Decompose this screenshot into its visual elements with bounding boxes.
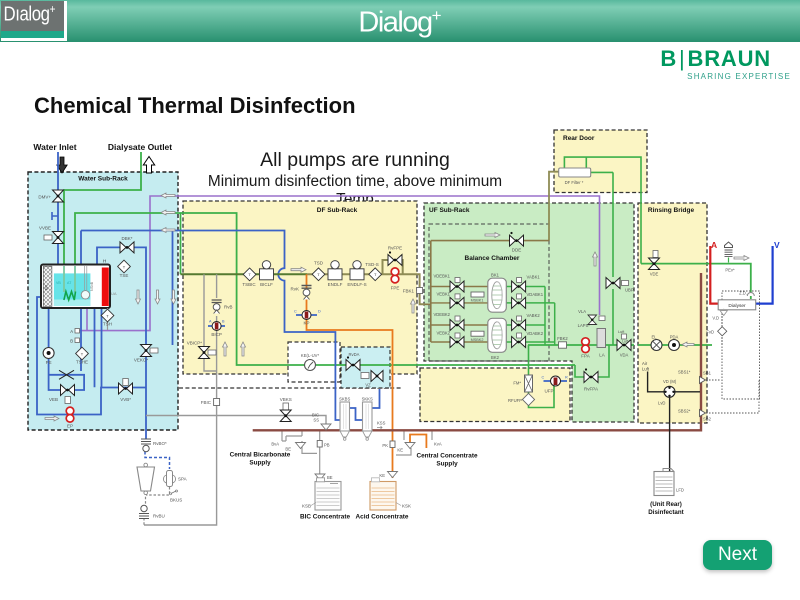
svg-text:RvBO*: RvBO* <box>153 441 167 446</box>
svg-text:UFP: UFP <box>545 389 554 394</box>
svg-text:BKUS: BKUS <box>170 498 182 503</box>
svg-text:TSHE: TSHE <box>76 360 88 365</box>
svg-text:DF Sub-Rack: DF Sub-Rack <box>317 207 358 214</box>
svg-text:Water Sub-Rack: Water Sub-Rack <box>78 176 128 183</box>
svg-text:VABK2: VABK2 <box>527 313 541 318</box>
svg-text:TSD-S: TSD-S <box>365 262 379 267</box>
svg-text:Water Inlet: Water Inlet <box>33 142 76 152</box>
svg-text:V: V <box>774 240 780 250</box>
svg-text:KE: KE <box>397 448 403 453</box>
svg-text:DMV+: DMV+ <box>38 195 51 200</box>
svg-text:Luft: Luft <box>642 367 650 372</box>
svg-text:DDE: DDE <box>512 248 522 253</box>
svg-text:SPA: SPA <box>178 477 187 482</box>
svg-text:PEv*: PEv* <box>725 268 735 273</box>
svg-text:VLA: VLA <box>578 309 586 314</box>
svg-text:KP: KP <box>303 321 309 326</box>
svg-text:Rear Door: Rear Door <box>563 135 595 142</box>
svg-text:RFUFP: RFUFP <box>508 398 522 403</box>
svg-text:Acid Concentrate: Acid Concentrate <box>356 514 409 521</box>
svg-text:BvA: BvA <box>271 442 279 447</box>
svg-text:FPE: FPE <box>391 286 400 291</box>
svg-text:LvD: LvD <box>658 401 665 406</box>
svg-text:VB: VB <box>56 281 61 285</box>
svg-text:Central Bicarbonate: Central Bicarbonate <box>230 452 291 459</box>
svg-text:FBIC: FBIC <box>201 400 212 405</box>
svg-text:BE: BE <box>327 475 333 480</box>
svg-text:SKBS: SKBS <box>339 397 350 402</box>
svg-text:VEB: VEB <box>49 397 58 402</box>
svg-text:VVBE: VVBE <box>39 226 51 231</box>
svg-text:A: A <box>70 329 73 334</box>
svg-text:VBICP*: VBICP* <box>187 341 203 346</box>
svg-text:VABK1: VABK1 <box>527 275 541 280</box>
svg-text:Supply: Supply <box>436 461 458 468</box>
svg-text:TSD: TSD <box>314 261 324 266</box>
svg-text:FBK1: FBK1 <box>403 289 415 294</box>
svg-text:BIC Concentrate: BIC Concentrate <box>300 514 351 521</box>
svg-text:KSS: KSS <box>377 421 386 426</box>
svg-text:Disinfectant: Disinfectant <box>648 509 683 516</box>
svg-text:SS: SS <box>313 418 319 423</box>
svg-text:MSBK2: MSBK2 <box>471 338 484 342</box>
svg-text:ENDLF-S: ENDLF-S <box>347 282 366 287</box>
svg-text:PE: PE <box>46 360 52 365</box>
svg-text:VDE: VDE <box>650 272 659 277</box>
svg-text:UF Sub-Rack: UF Sub-Rack <box>429 207 470 214</box>
svg-text:Air: Air <box>642 361 648 366</box>
svg-text:SKKS: SKKS <box>362 397 373 402</box>
svg-text:PK: PK <box>382 443 388 448</box>
svg-text:Dialyser: Dialyser <box>728 303 746 309</box>
svg-text:R: R <box>565 376 568 380</box>
svg-text:RvDA: RvDA <box>349 352 360 357</box>
svg-text:BICLF: BICLF <box>260 282 273 287</box>
svg-text:PB: PB <box>324 443 330 448</box>
svg-text:BK1: BK1 <box>491 273 500 278</box>
svg-text:DF Filter *: DF Filter * <box>565 180 584 185</box>
svg-text:DBK*: DBK* <box>121 236 132 241</box>
svg-text:KE: KE <box>379 473 385 478</box>
svg-text:VDEBK2: VDEBK2 <box>433 312 450 317</box>
svg-text:FBK2: FBK2 <box>557 336 568 341</box>
svg-text:FvD: FvD <box>706 330 714 335</box>
svg-text:RvFPE: RvFPE <box>388 246 402 251</box>
svg-text:KSB: KSB <box>302 504 311 509</box>
svg-text:Luft: Luft <box>618 330 625 334</box>
svg-text:Dialysate Outlet: Dialysate Outlet <box>108 142 172 152</box>
svg-text:UBP: UBP <box>625 288 634 293</box>
svg-text:KSK: KSK <box>402 504 411 509</box>
svg-text:VEKO*: VEKO* <box>134 358 149 363</box>
svg-text:VEBK2: VEBK2 <box>436 331 450 336</box>
svg-text:C: C <box>294 310 297 314</box>
svg-text:KvA: KvA <box>434 442 442 447</box>
svg-text:NSvB: NSvB <box>90 281 94 291</box>
svg-text:VBKS: VBKS <box>280 397 292 402</box>
svg-text:LFD: LFD <box>676 488 684 493</box>
svg-text:LA: LA <box>599 353 605 358</box>
svg-text:ENDLF: ENDLF <box>328 282 343 287</box>
svg-text:RvBU: RvBU <box>153 514 165 519</box>
svg-text:FPA: FPA <box>581 354 589 359</box>
svg-text:UA: UA <box>111 291 117 296</box>
svg-text:B: B <box>70 339 73 344</box>
svg-text:SBS2*: SBS2* <box>678 409 691 414</box>
svg-text:RvK: RvK <box>290 287 299 292</box>
svg-text:VDABK1: VDABK1 <box>527 292 544 297</box>
svg-text:V.D: V.D <box>712 316 719 321</box>
svg-text:SB2: SB2 <box>703 417 712 422</box>
svg-text:KE(L-UV*: KE(L-UV* <box>301 353 320 358</box>
svg-text:RvFPA: RvFPA <box>584 387 598 392</box>
svg-text:EK: EK <box>45 284 49 290</box>
svg-text:SB1: SB1 <box>703 371 712 376</box>
svg-text:C: C <box>542 376 545 380</box>
svg-text:MSBK1: MSBK1 <box>471 299 484 303</box>
svg-text:Rinsing Bridge: Rinsing Bridge <box>648 207 695 214</box>
svg-text:A: A <box>711 240 717 250</box>
svg-text:FM*: FM* <box>513 381 521 386</box>
svg-text:VEBK1: VEBK1 <box>436 292 450 297</box>
svg-text:VDABK2: VDABK2 <box>527 331 544 336</box>
svg-text:Central Concentrate: Central Concentrate <box>416 453 478 460</box>
svg-text:VDA: VDA <box>620 353 629 358</box>
svg-text:SBS1*: SBS1* <box>678 370 691 375</box>
svg-text:BICP: BICP <box>211 332 222 337</box>
svg-text:VZ: VZ <box>365 383 371 388</box>
svg-text:BK2: BK2 <box>491 355 500 360</box>
svg-text:EL: EL <box>651 335 657 340</box>
svg-text:VVB*: VVB* <box>120 397 131 402</box>
svg-text:Balance Chamber: Balance Chamber <box>465 255 520 262</box>
svg-text:EP: EP <box>67 424 73 429</box>
svg-text:H: H <box>103 259 106 264</box>
svg-text:Z.D.: Z.D. <box>739 291 747 296</box>
svg-text:D: D <box>318 310 321 314</box>
svg-text:VD (M): VD (M) <box>663 379 677 384</box>
svg-text:RvB: RvB <box>224 305 233 310</box>
svg-text:(Unit Rear): (Unit Rear) <box>650 501 682 508</box>
svg-text:Supply: Supply <box>249 460 271 467</box>
svg-text:TSE: TSE <box>120 273 129 278</box>
svg-text:VDEBK1: VDEBK1 <box>433 274 450 279</box>
svg-text:TSBIC: TSBIC <box>242 282 256 287</box>
svg-text:TSH: TSH <box>103 322 112 327</box>
svg-text:PDA: PDA <box>670 335 679 340</box>
